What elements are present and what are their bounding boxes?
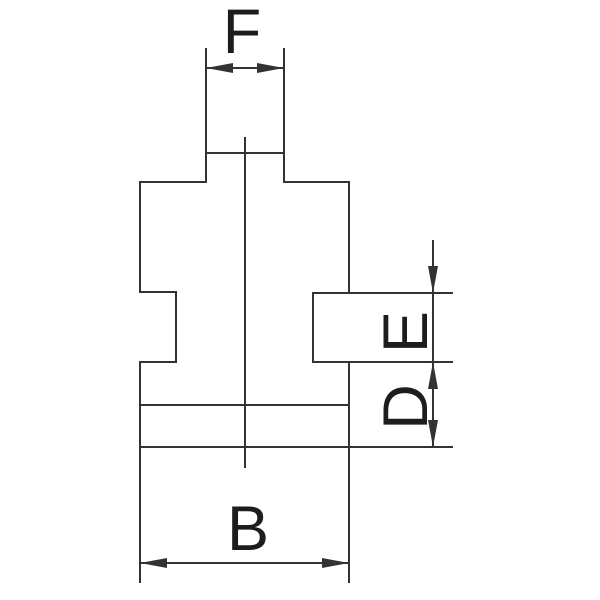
dimension-label-d: D (371, 384, 441, 430)
drawing-canvas: F E D B (0, 0, 600, 600)
dimension-label-f: F (223, 0, 261, 67)
b-left-arrow-icon (140, 558, 167, 568)
dimension-label-b: B (227, 494, 269, 564)
dimension-f: F (206, 0, 284, 73)
e-top-arrow-icon (428, 266, 438, 293)
technical-drawing: F E D B (0, 0, 600, 600)
b-right-arrow-icon (322, 558, 349, 568)
dimension-e-d: E D (371, 240, 441, 447)
dimension-label-e: E (371, 311, 441, 353)
left-side-with-notch-and-b-extension (140, 182, 176, 582)
dimension-b: B (140, 494, 349, 568)
